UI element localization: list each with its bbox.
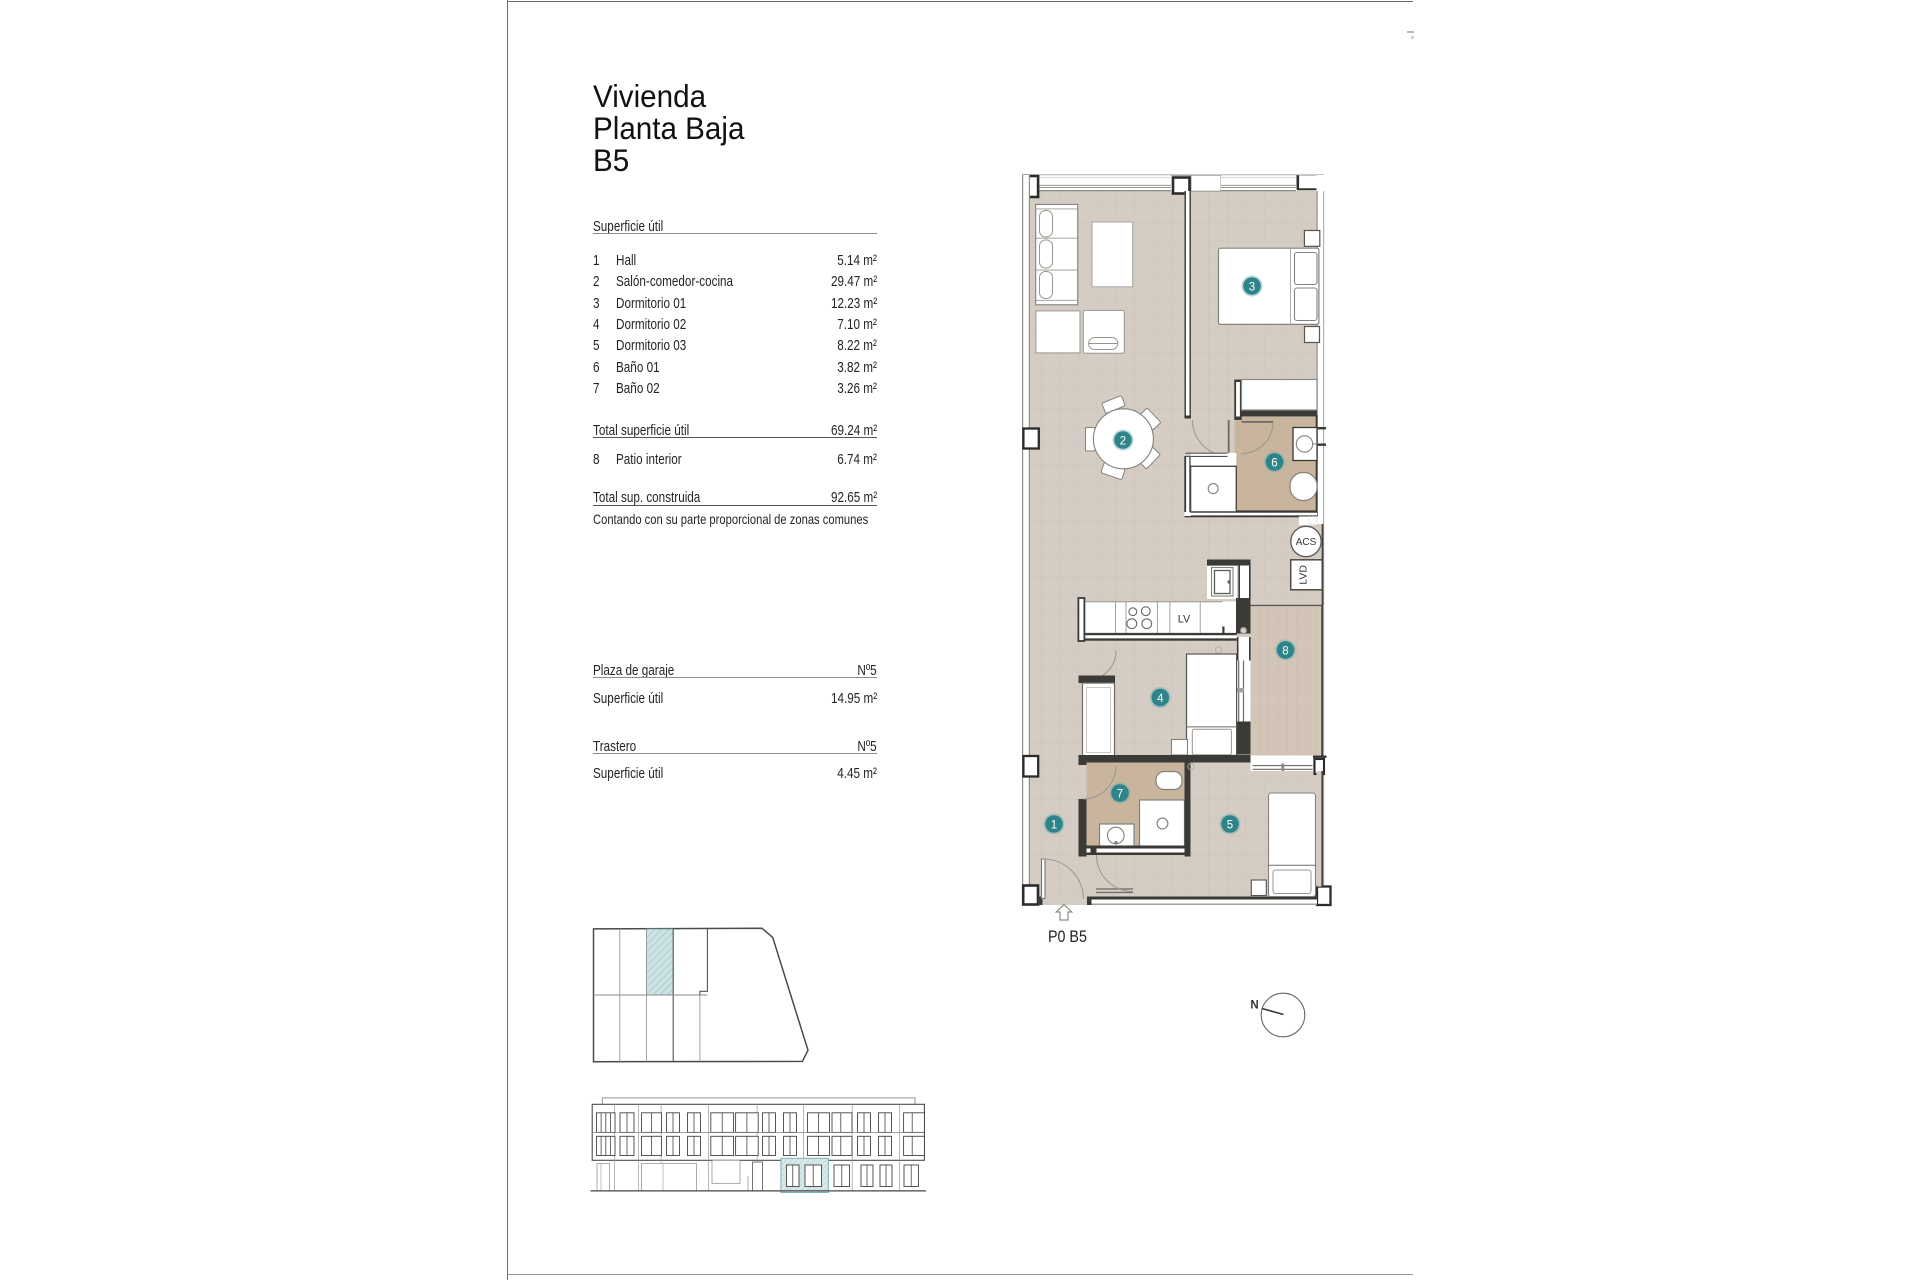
- svg-text:4: 4: [1157, 693, 1164, 705]
- svg-text:N: N: [1250, 1000, 1258, 1012]
- svg-text:LV: LV: [1178, 614, 1191, 626]
- svg-text:2: 2: [1120, 435, 1126, 447]
- svg-text:7: 7: [1117, 788, 1123, 800]
- svg-text:3: 3: [1249, 281, 1255, 293]
- svg-text:1: 1: [1051, 819, 1057, 831]
- svg-text:6: 6: [1271, 457, 1277, 469]
- svg-text:ACS: ACS: [1296, 537, 1317, 548]
- svg-text:LVD: LVD: [1298, 565, 1310, 585]
- svg-text:5: 5: [1227, 819, 1233, 831]
- svg-text:8: 8: [1282, 645, 1288, 657]
